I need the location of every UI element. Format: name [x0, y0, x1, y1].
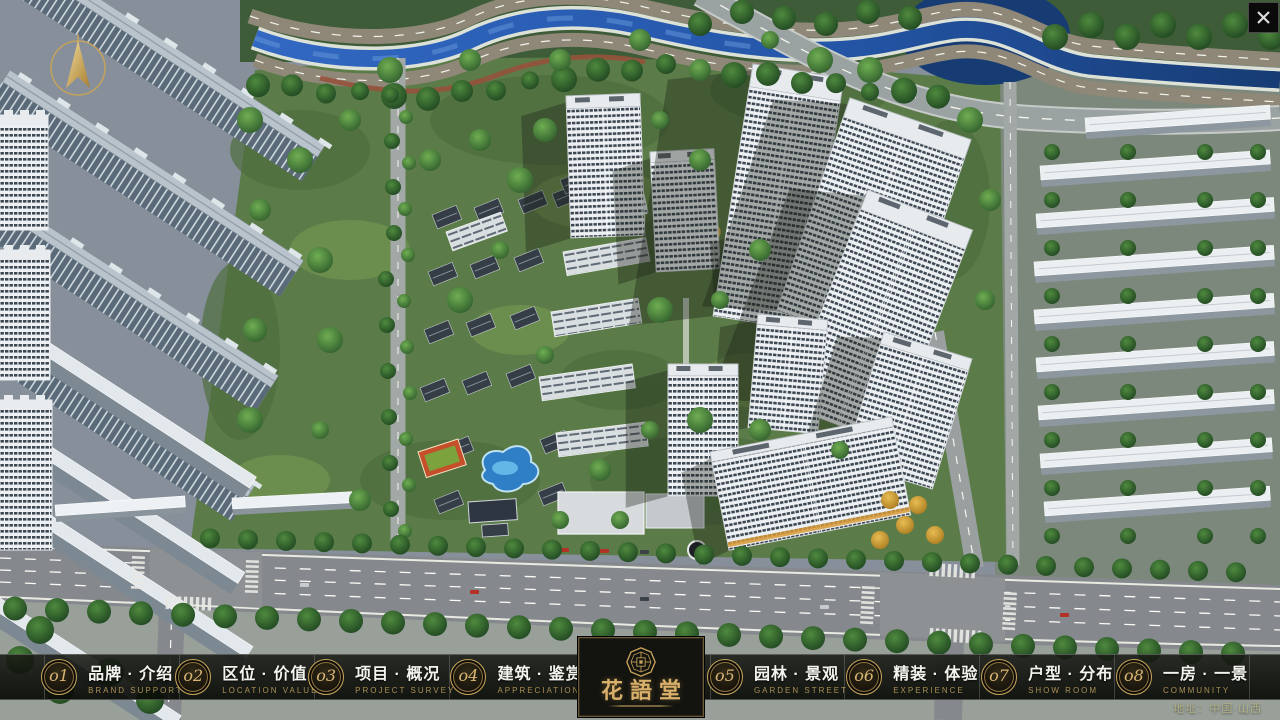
logo-seal-icon	[626, 647, 656, 677]
nav-number-badge: o7	[981, 659, 1017, 695]
close-button[interactable]	[1248, 2, 1279, 33]
nav-number-badge: o4	[450, 659, 486, 695]
nav-number: o6	[854, 668, 874, 684]
nav-subtitle: BRAND SUPPORT	[88, 686, 183, 695]
project-address: 地址：中国·山西	[1173, 700, 1262, 716]
nav-item-floorplan[interactable]: o7 户型 · 分布 SHOW ROOM	[979, 655, 1114, 699]
north-arrow-icon	[66, 40, 90, 88]
nav-item-interior[interactable]: o6 精装 · 体验 EXPERIENCE	[844, 655, 979, 699]
nav-subtitle: SHOW ROOM	[1028, 686, 1098, 695]
nav-number-badge: o3	[308, 659, 344, 695]
nav-subtitle: EXPERIENCE	[893, 686, 965, 695]
project-name: 花語堂	[594, 680, 688, 702]
nav-subtitle: GARDEN STREET	[754, 686, 848, 695]
nav-title: 一房 · 一景	[1163, 660, 1248, 684]
nav-title: 户型 · 分布	[1028, 660, 1113, 684]
nav-item-garden[interactable]: o5 园林 · 景观 GARDEN STREET	[710, 655, 845, 699]
nav-title: 建筑 · 鉴赏	[497, 660, 582, 684]
east-residential-rows	[1034, 105, 1275, 523]
nav-number-badge: o8	[1116, 659, 1152, 695]
nav-item-architecture[interactable]: o4 建筑 · 鉴赏 APPRECIATION	[449, 655, 584, 699]
aerial-masterplan-render	[0, 0, 1280, 720]
nav-number: o1	[49, 668, 69, 684]
logo-divider	[608, 705, 674, 707]
nav-number: o5	[715, 668, 735, 684]
nav-number-badge: o1	[41, 659, 77, 695]
nav-title: 品牌 · 介绍	[88, 660, 173, 684]
nav-number-badge: o6	[846, 659, 882, 695]
nav-item-brand[interactable]: o1 品牌 · 介绍 BRAND SUPPORT	[44, 655, 179, 699]
nav-number: o2	[183, 668, 203, 684]
nav-title: 园林 · 景观	[754, 660, 839, 684]
nav-spacer	[0, 655, 44, 699]
sales-presentation-window: o1 品牌 · 介绍 BRAND SUPPORT o2 区位 · 价值 LOCA…	[0, 0, 1280, 720]
nav-number-badge: o2	[175, 659, 211, 695]
nav-item-view[interactable]: o8 一房 · 一景 COMMUNITY	[1114, 655, 1249, 699]
project-logo[interactable]: 花語堂	[578, 637, 704, 717]
nav-subtitle: COMMUNITY	[1163, 686, 1230, 695]
nav-item-location[interactable]: o2 区位 · 价值 LOCATION VALUE	[179, 655, 314, 699]
nav-spacer	[1249, 655, 1280, 699]
nav-subtitle: APPRECIATION	[497, 686, 580, 695]
nav-title: 精装 · 体验	[893, 660, 978, 684]
close-icon	[1255, 9, 1272, 26]
nav-item-project[interactable]: o3 项目 · 概况 PROJECT SURVEY	[314, 655, 449, 699]
nav-subtitle: LOCATION VALUE	[222, 686, 318, 695]
nav-title: 区位 · 价值	[222, 660, 307, 684]
nav-subtitle: PROJECT SURVEY	[355, 686, 455, 695]
nav-number-badge: o5	[707, 659, 743, 695]
nav-number: o7	[989, 668, 1009, 684]
nav-number: o3	[316, 668, 336, 684]
compass-north-indicator	[44, 32, 112, 100]
nav-number: o8	[1124, 668, 1144, 684]
nav-number: o4	[459, 668, 479, 684]
nav-title: 项目 · 概况	[355, 660, 440, 684]
